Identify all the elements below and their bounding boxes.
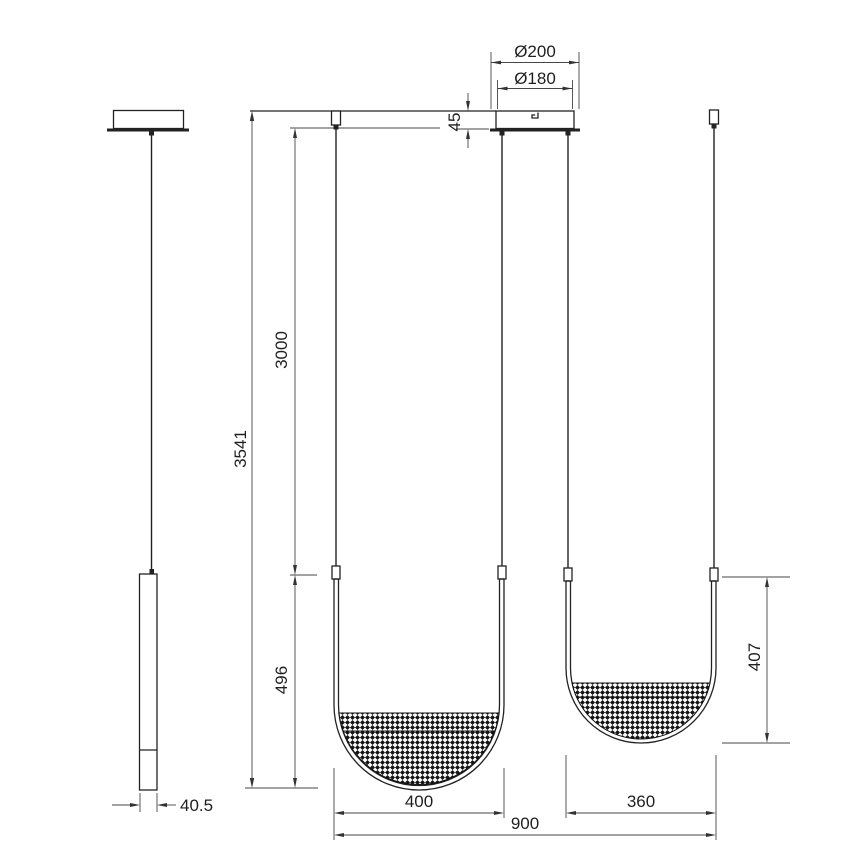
dim-pendant-right-width: 360 — [566, 755, 716, 818]
dim-canopy-height: 45 — [445, 93, 489, 148]
dim-tube-depth: 40.5 — [112, 793, 213, 815]
dim-pendant-left-width-label: 400 — [405, 792, 433, 811]
pendant2-diffuser-hatch — [572, 683, 710, 739]
dim-suspension-length: 3000 — [272, 128, 440, 575]
dim-tube-depth-label: 40.5 — [180, 796, 213, 815]
dim-pendant-right-height-label: 407 — [745, 643, 764, 671]
canopy-front-view — [490, 111, 580, 136]
pendant1-diffuser-hatch — [339, 713, 499, 785]
cable-grip-right — [710, 110, 719, 129]
pendant-tube-side-view — [140, 569, 158, 790]
dim-pendant-right-height: 407 — [722, 577, 790, 743]
dim-overall-width-label: 900 — [511, 814, 539, 833]
dim-pendant-right-width-label: 360 — [627, 792, 655, 811]
dim-canopy-height-label: 45 — [445, 113, 464, 132]
pendant2-u-tube — [564, 568, 718, 743]
dim-pendant-left-drop: 496 — [272, 575, 297, 788]
pendant-lamp-dimension-drawing: 40.5 3541 3000 496 — [0, 0, 868, 868]
dim-canopy-inner-diameter: Ø180 — [498, 69, 573, 109]
dim-pendant-left-drop-label: 496 — [272, 666, 291, 694]
technical-drawing-canvas: 40.5 3541 3000 496 — [0, 0, 868, 868]
cable-grip-left — [332, 111, 341, 130]
dim-canopy-outer-diameter-label: Ø200 — [514, 42, 556, 61]
dim-total-height-label: 3541 — [231, 430, 250, 468]
pendant1-u-tube — [332, 566, 506, 790]
dim-canopy-inner-diameter-label: Ø180 — [514, 69, 556, 88]
canopy-side-view — [107, 111, 189, 136]
suspension-cables — [336, 129, 714, 569]
dim-suspension-length-label: 3000 — [272, 331, 291, 369]
